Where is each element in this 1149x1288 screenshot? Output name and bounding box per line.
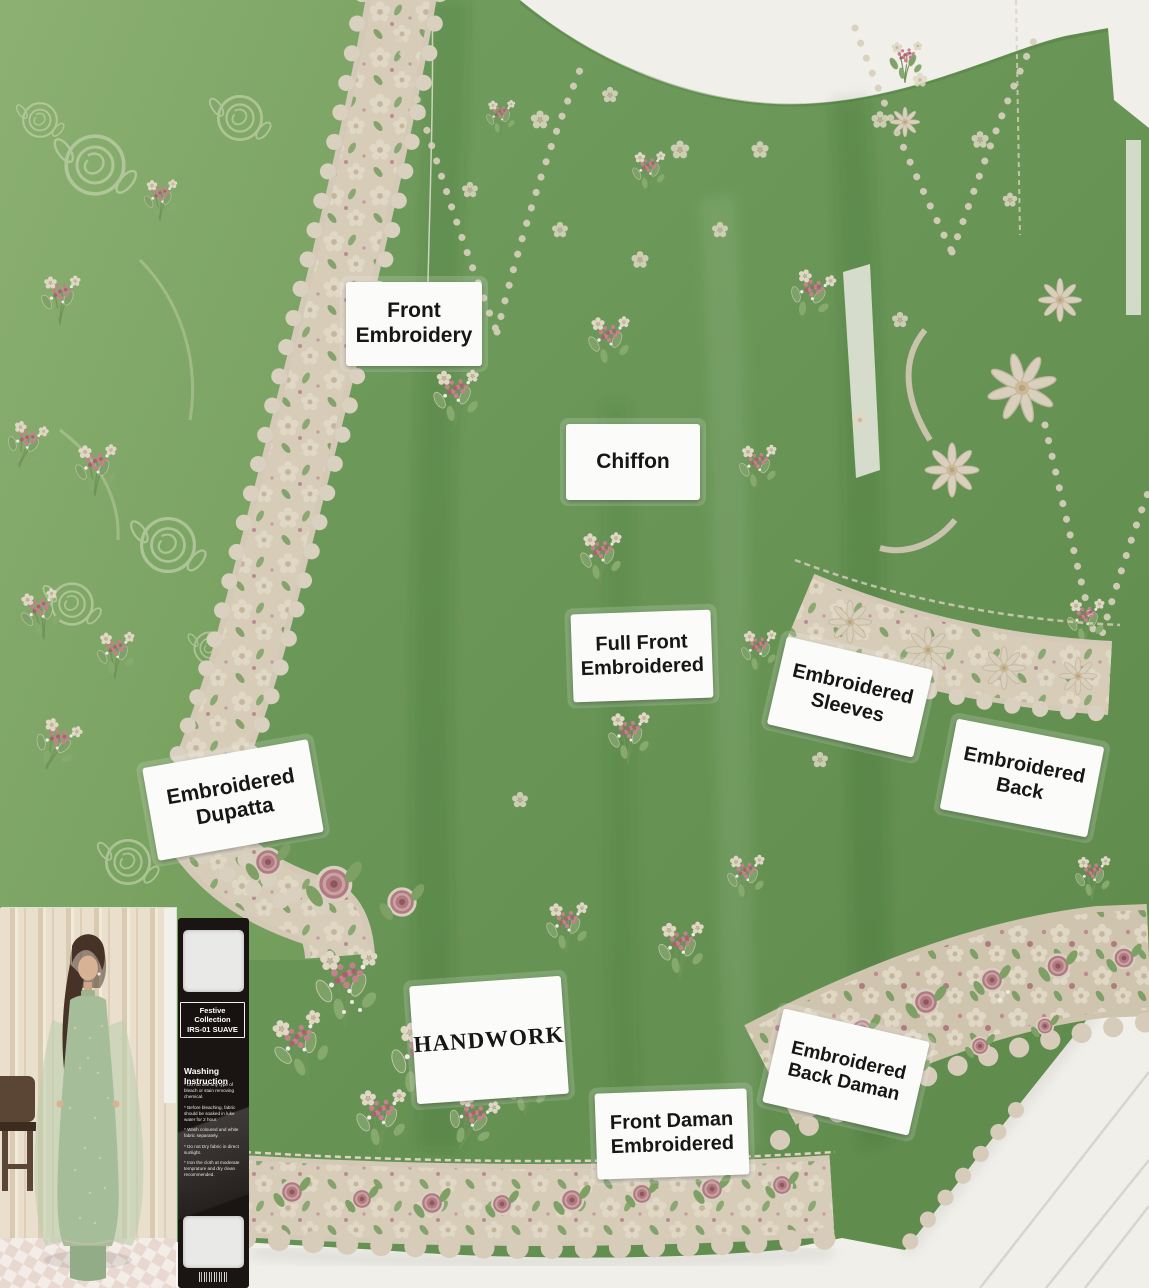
label-handwork: HANDWORK [409,976,569,1104]
model-photo-inset [0,908,176,1288]
washing-item: * Do not use any type of bleach or stain… [184,1082,242,1101]
label-full-front-embroidered: Full Front Embroidered [571,610,714,703]
trousers [70,1246,106,1281]
label-chiffon: Chiffon [566,424,700,500]
washing-item: * Wash coloured and white fabric separat… [184,1127,242,1139]
label-front-embroidery: Front Embroidery [346,282,482,366]
tag-collection-text: Festive Collection IRS-01 SUAVE [181,1003,244,1037]
tag-washing-items: * Do not use any type of bleach or stain… [184,1082,242,1182]
washing-item: * Before bleaching, fabric should be soa… [184,1105,242,1124]
washing-item: * Do not Dry fabric in direct sunlight. [184,1144,242,1156]
model-photo [0,908,176,1288]
tag-top-card [183,930,244,992]
model-face [78,956,98,981]
washing-item: * Iron the cloth at moderate temprature … [184,1160,242,1179]
tag-collection-band: Festive Collection IRS-01 SUAVE [180,1002,245,1038]
tag-bottom-card [183,1216,244,1268]
product-photo: Front Embroidery Chiffon Full Front Embr… [0,0,1149,1288]
earring [97,972,100,975]
barcode-icon [199,1272,229,1282]
hang-tag: Festive Collection IRS-01 SUAVE Washing … [178,918,249,1288]
label-front-daman-embroidered: Front Daman Embroidered [595,1088,750,1179]
